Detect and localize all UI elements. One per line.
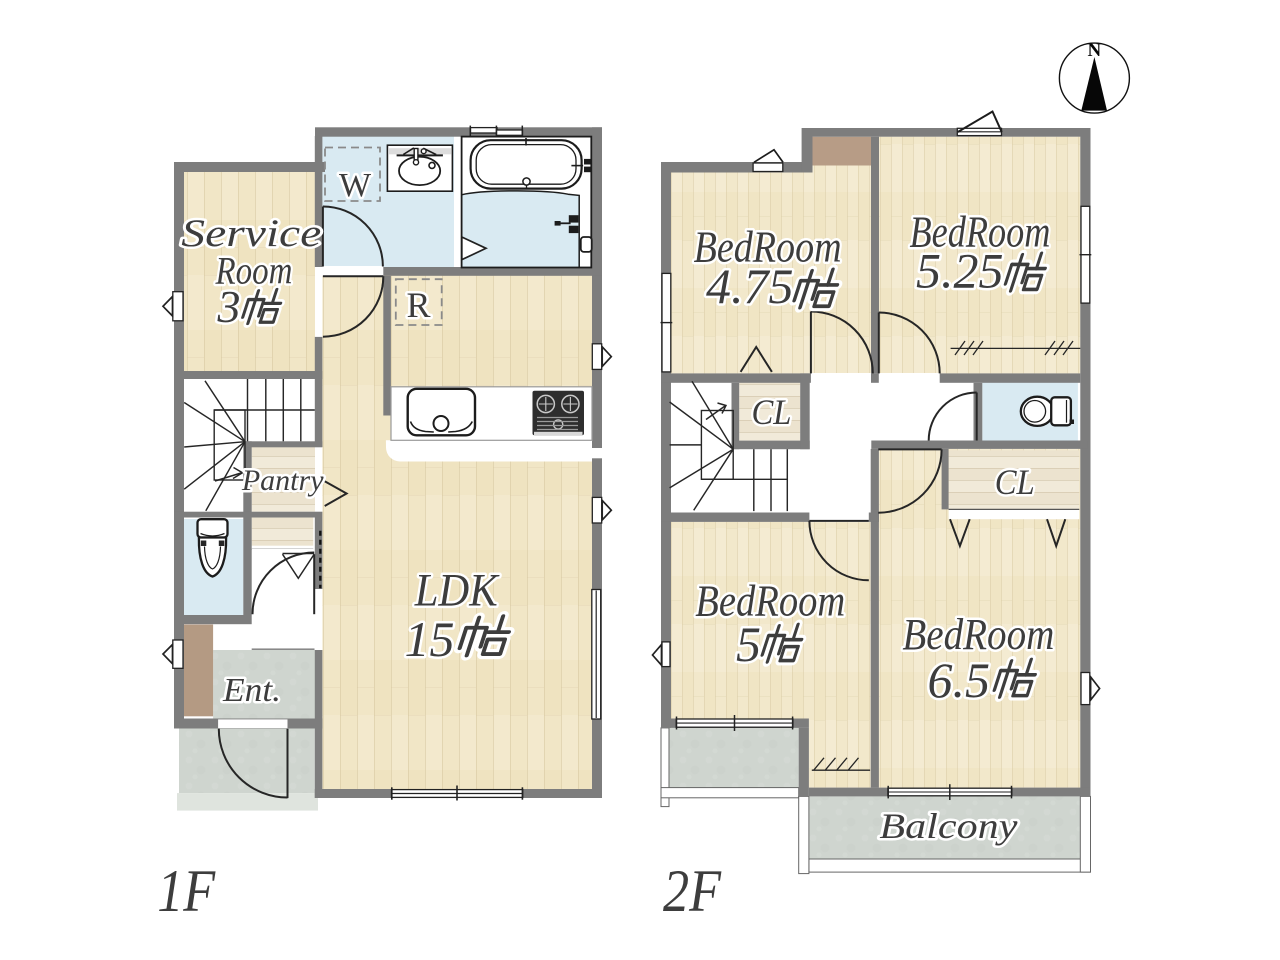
svg-text:N: N [1088, 40, 1102, 61]
svg-text:BedRoom: BedRoom [695, 576, 845, 625]
svg-text:2F: 2F [663, 858, 722, 924]
svg-text:6.5: 6.5 [928, 652, 991, 708]
svg-text:CL: CL [752, 392, 792, 432]
svg-text:1F: 1F [157, 858, 216, 924]
svg-text:Ent.: Ent. [222, 672, 281, 709]
svg-text:Pantry: Pantry [241, 464, 324, 497]
svg-text:W: W [339, 167, 372, 204]
svg-text:15: 15 [405, 611, 455, 667]
svg-text:CL: CL [995, 462, 1035, 502]
svg-text:LDK: LDK [414, 565, 500, 617]
svg-text:5.25: 5.25 [916, 243, 1004, 299]
svg-text:5: 5 [736, 616, 761, 672]
svg-text:4.75: 4.75 [706, 258, 794, 314]
svg-text:3: 3 [217, 281, 241, 332]
svg-text:R: R [406, 285, 430, 325]
svg-text:Balcony: Balcony [879, 806, 1017, 846]
